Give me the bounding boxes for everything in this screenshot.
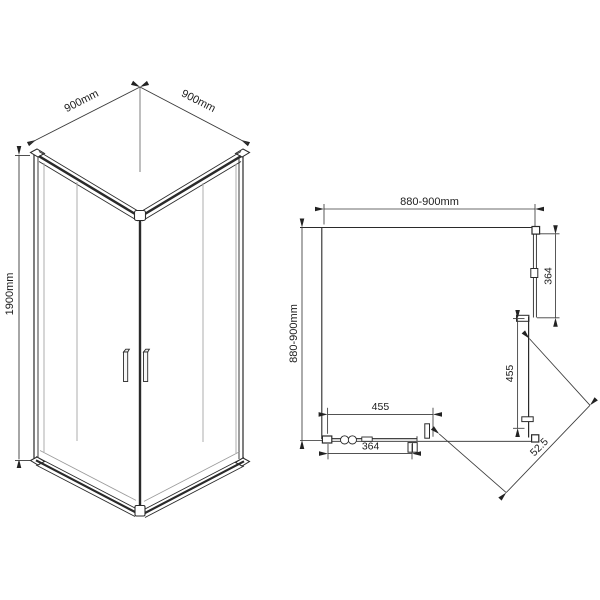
diagonal-ext-upper: [529, 339, 590, 406]
plan-455-bottom-label: 455: [372, 401, 390, 413]
iso-dimensions: [15, 87, 248, 461]
handle-bar: [124, 352, 128, 382]
handle-bar: [144, 352, 148, 382]
glass-bottom-edge: [144, 452, 240, 502]
top-rail-left: [39, 152, 138, 222]
profile-cap: [31, 149, 45, 157]
rail-edge: [39, 152, 138, 212]
bottom-rail-left: [36, 451, 136, 517]
top-rail-right: [142, 152, 241, 222]
drawing-svg: 900mm 900mm 1900mm: [0, 0, 600, 600]
rail-band: [142, 156, 241, 216]
bottom-rail-right: [144, 452, 244, 518]
plan-structure: [300, 227, 540, 453]
corner-post-bottom-left: [322, 436, 331, 443]
plan-455-right-label: 455: [504, 365, 516, 383]
right-wall-profile: [236, 149, 250, 466]
glass-bottom-edge: [40, 451, 136, 501]
rail-band: [36, 460, 135, 512]
iso-view: 900mm 900mm 1900mm: [4, 87, 250, 518]
corner-joint-bottom: [135, 506, 145, 517]
door-handle-left: [124, 349, 130, 381]
rail-edge: [36, 465, 135, 517]
rail-edge: [145, 466, 244, 518]
dim-tick: [29, 140, 36, 144]
roller-wheel: [341, 436, 349, 444]
plan-width-label: 880-900mm: [400, 196, 459, 208]
rail-edge: [145, 458, 244, 510]
rail-edge: [142, 162, 241, 222]
rail-edge: [36, 457, 135, 509]
rail-edge: [142, 152, 241, 212]
dim-tick: [241, 140, 248, 144]
rail-band: [145, 461, 244, 513]
dim-line-diagonal: [506, 405, 590, 492]
corner-joint-top: [135, 211, 146, 221]
plan-364-right-label: 364: [543, 267, 555, 285]
plan-view: 880-900mm 880-900mm 364 455 455 364 52.5: [288, 196, 590, 493]
technical-drawing-canvas: 900mm 900mm 1900mm: [0, 0, 600, 600]
door-handle-bottom-plan: [425, 424, 430, 438]
plan-364-bottom-label: 364: [362, 441, 380, 453]
diagonal-ext-lower: [439, 434, 506, 493]
rail-band: [39, 156, 138, 216]
profile-cap: [236, 149, 250, 157]
rail-edge: [39, 162, 138, 222]
left-wall-profile: [31, 149, 45, 465]
door-handle-right-plan: [522, 417, 533, 422]
door-handle-right: [144, 349, 150, 381]
plan-dimensions: [302, 204, 590, 493]
corner-post-top-right: [532, 227, 540, 235]
plan-depth-label: 880-900mm: [288, 304, 300, 363]
iso-height-label: 1900mm: [4, 273, 16, 316]
iso-width-left-label: 900mm: [63, 88, 101, 115]
roller-wheel: [348, 436, 356, 444]
panel-bracket-right: [531, 269, 538, 278]
